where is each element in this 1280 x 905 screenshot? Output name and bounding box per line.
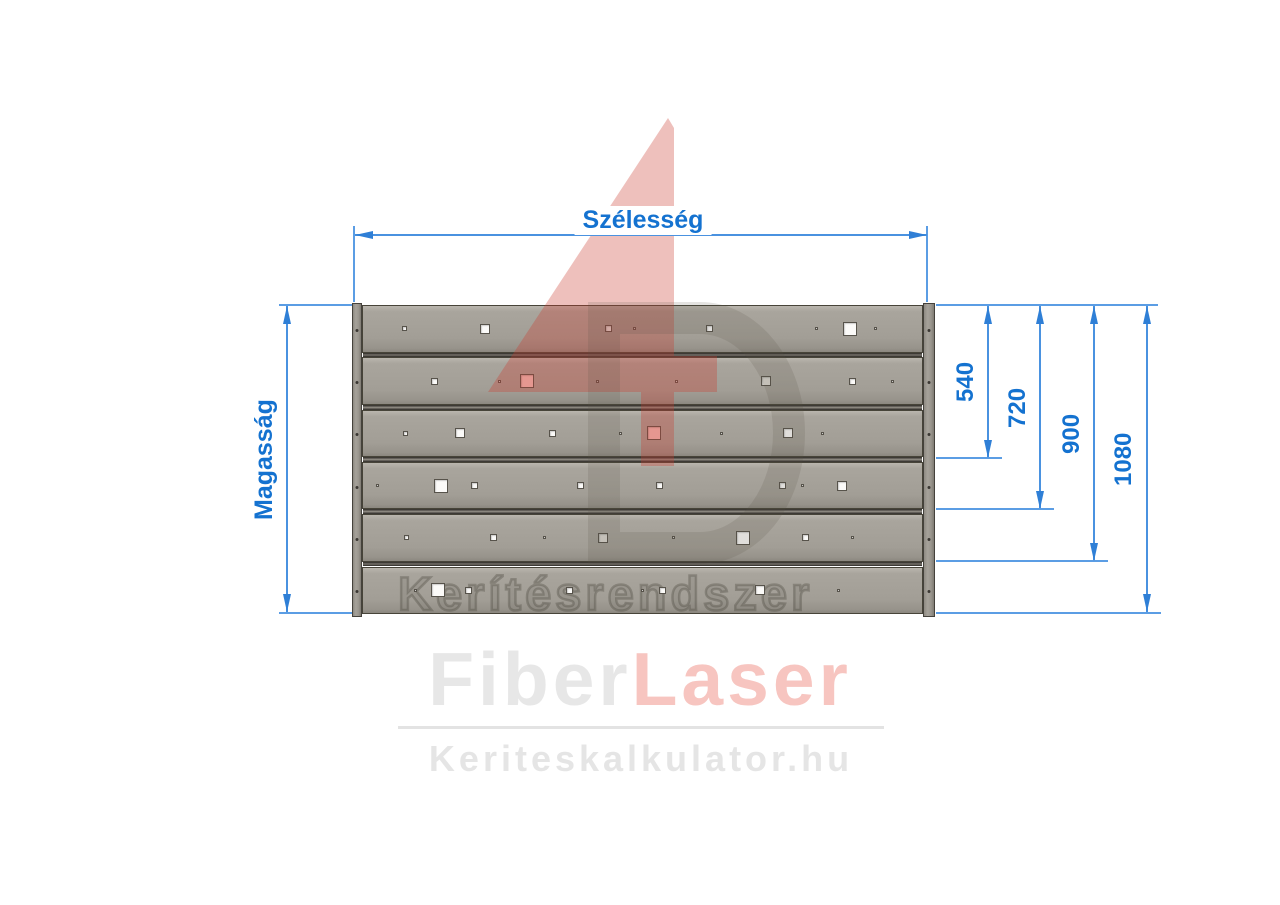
- height-dimension-line: [286, 306, 288, 612]
- perforation-hole: [641, 589, 644, 592]
- slat: [362, 305, 923, 353]
- fastener-dot: [928, 486, 931, 489]
- perforation-hole: [431, 378, 438, 385]
- perforation-hole: [761, 376, 771, 386]
- brand-logo-laser: Laser: [632, 637, 852, 721]
- perforation-hole: [720, 432, 723, 435]
- perforation-hole: [672, 536, 675, 539]
- slat: [362, 357, 923, 405]
- perforation-hole: [471, 482, 478, 489]
- fence-panel: Kerítésrendszer: [362, 305, 923, 614]
- arrowhead-down-icon: [1090, 543, 1098, 561]
- perforation-hole: [802, 534, 809, 541]
- brand-logo: FiberLaser: [428, 636, 852, 722]
- arrowhead-down-icon: [984, 440, 992, 458]
- perforation-hole: [843, 322, 857, 336]
- arrowhead-up-icon: [1143, 306, 1151, 324]
- slat: [362, 410, 923, 458]
- perforation-hole: [783, 428, 793, 438]
- perforation-hole: [520, 374, 534, 388]
- extension-540: [936, 457, 1002, 459]
- perforation-hole: [706, 325, 713, 332]
- perforation-hole: [549, 430, 556, 437]
- fastener-dot: [356, 538, 359, 541]
- fastener-dot: [928, 538, 931, 541]
- fastener-dot: [356, 329, 359, 332]
- extension-900: [936, 560, 1108, 562]
- perforation-hole: [431, 583, 445, 597]
- perforation-hole: [815, 327, 818, 330]
- perforation-hole: [837, 481, 847, 491]
- arrowhead-right-icon: [909, 231, 927, 239]
- arrowhead-up-icon: [283, 306, 291, 324]
- perforation-hole: [779, 482, 786, 489]
- brand-logo-fiber: Fiber: [428, 637, 631, 721]
- perforation-hole: [465, 587, 472, 594]
- perforation-hole: [801, 484, 804, 487]
- perforation-hole: [874, 327, 877, 330]
- perforation-hole: [736, 531, 750, 545]
- dimension-value-720: 720: [1004, 343, 1036, 473]
- height-extension-top: [279, 304, 352, 306]
- perforation-hole: [891, 380, 894, 383]
- extension-720: [936, 508, 1054, 510]
- brand-divider: [398, 726, 884, 729]
- perforation-hole: [402, 326, 407, 331]
- dimension-value-540: 540: [952, 317, 984, 447]
- arrowhead-down-icon: [1036, 491, 1044, 509]
- width-extension-right: [926, 226, 928, 302]
- slat: [362, 514, 923, 562]
- fastener-dot: [356, 486, 359, 489]
- dim-line-720: [1039, 306, 1041, 509]
- fastener-dot: [928, 590, 931, 593]
- fastener-dot: [356, 590, 359, 593]
- width-extension-left: [353, 226, 355, 302]
- perforation-hole: [659, 587, 666, 594]
- arrowhead-left-icon: [355, 231, 373, 239]
- perforation-hole: [598, 533, 608, 543]
- arrowhead-down-icon: [283, 594, 291, 612]
- perforation-hole: [851, 536, 854, 539]
- perforation-hole: [596, 380, 599, 383]
- perforation-hole: [605, 325, 612, 332]
- dim-line-900: [1093, 306, 1095, 561]
- perforation-hole: [404, 535, 409, 540]
- fastener-dot: [928, 329, 931, 332]
- perforation-hole: [755, 585, 765, 595]
- perforation-hole: [498, 380, 501, 383]
- dimension-value-1080: 1080: [1110, 394, 1142, 524]
- perforation-hole: [403, 431, 408, 436]
- panel-right-post: [923, 303, 935, 617]
- perforation-hole: [647, 426, 661, 440]
- dim-line-1080: [1146, 306, 1148, 612]
- perforation-hole: [566, 587, 573, 594]
- arrowhead-up-icon: [1090, 306, 1098, 324]
- arrowhead-down-icon: [1143, 594, 1151, 612]
- fastener-dot: [356, 433, 359, 436]
- segments-extension-top: [936, 304, 1158, 306]
- perforation-hole: [455, 428, 465, 438]
- perforation-hole: [490, 534, 497, 541]
- fence-drawing-canvas: Kerítésrendszer Szélesség Magasság 540 7…: [0, 0, 1280, 905]
- fastener-dot: [928, 433, 931, 436]
- perforation-hole: [656, 482, 663, 489]
- extension-1080: [936, 612, 1161, 614]
- height-dimension-label: Magasság: [250, 370, 284, 550]
- width-dimension-label: Szélesség: [575, 206, 712, 235]
- perforation-hole: [821, 432, 824, 435]
- dim-line-540: [987, 306, 989, 458]
- brand-url: Keriteskalkulator.hu: [429, 738, 853, 780]
- dimension-value-900: 900: [1058, 369, 1090, 499]
- perforation-hole: [577, 482, 584, 489]
- perforation-hole: [480, 324, 490, 334]
- perforation-hole: [675, 380, 678, 383]
- perforation-hole: [414, 589, 417, 592]
- arrowhead-up-icon: [984, 306, 992, 324]
- perforation-hole: [837, 589, 840, 592]
- perforation-hole: [619, 432, 622, 435]
- panel-left-post: [352, 303, 362, 617]
- perforation-hole: [376, 484, 379, 487]
- fastener-dot: [928, 381, 931, 384]
- arrowhead-up-icon: [1036, 306, 1044, 324]
- perforation-hole: [543, 536, 546, 539]
- perforation-hole: [633, 327, 636, 330]
- fastener-dot: [356, 381, 359, 384]
- perforation-hole: [849, 378, 856, 385]
- height-extension-bottom: [279, 612, 352, 614]
- perforation-hole: [434, 479, 448, 493]
